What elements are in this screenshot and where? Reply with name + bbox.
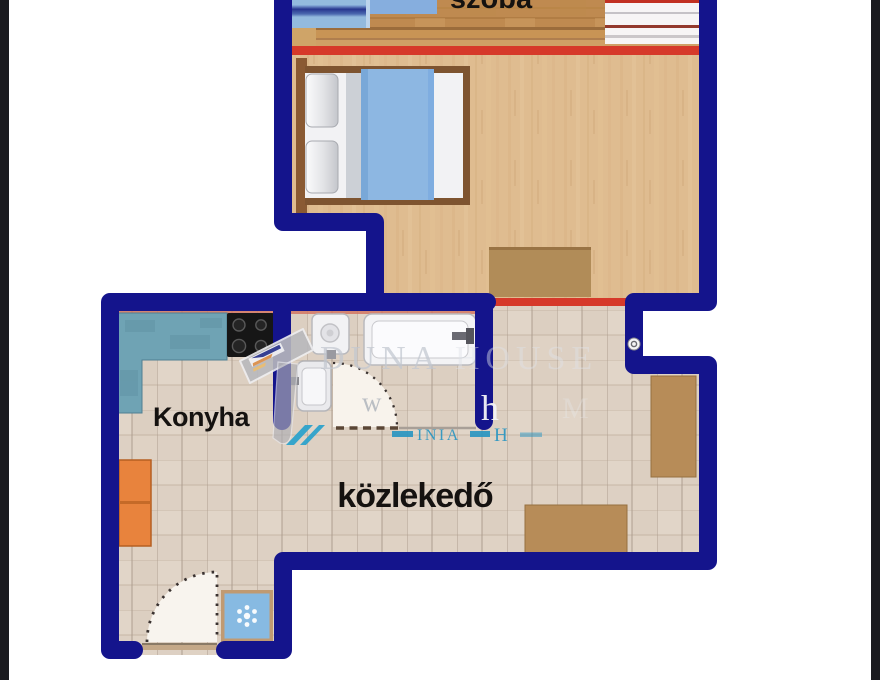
- svg-text:DUNA: DUNA: [320, 340, 442, 377]
- svg-text:h: h: [481, 388, 499, 428]
- svg-text:közlekedő: közlekedő: [337, 477, 493, 515]
- svg-text:INIA: INIA: [417, 427, 461, 444]
- svg-text:M: M: [562, 392, 589, 425]
- svg-text:Konyha: Konyha: [153, 402, 250, 432]
- svg-text:szoba: szoba: [450, 0, 533, 15]
- svg-text:w: w: [362, 387, 382, 417]
- svg-text:H: H: [494, 425, 508, 446]
